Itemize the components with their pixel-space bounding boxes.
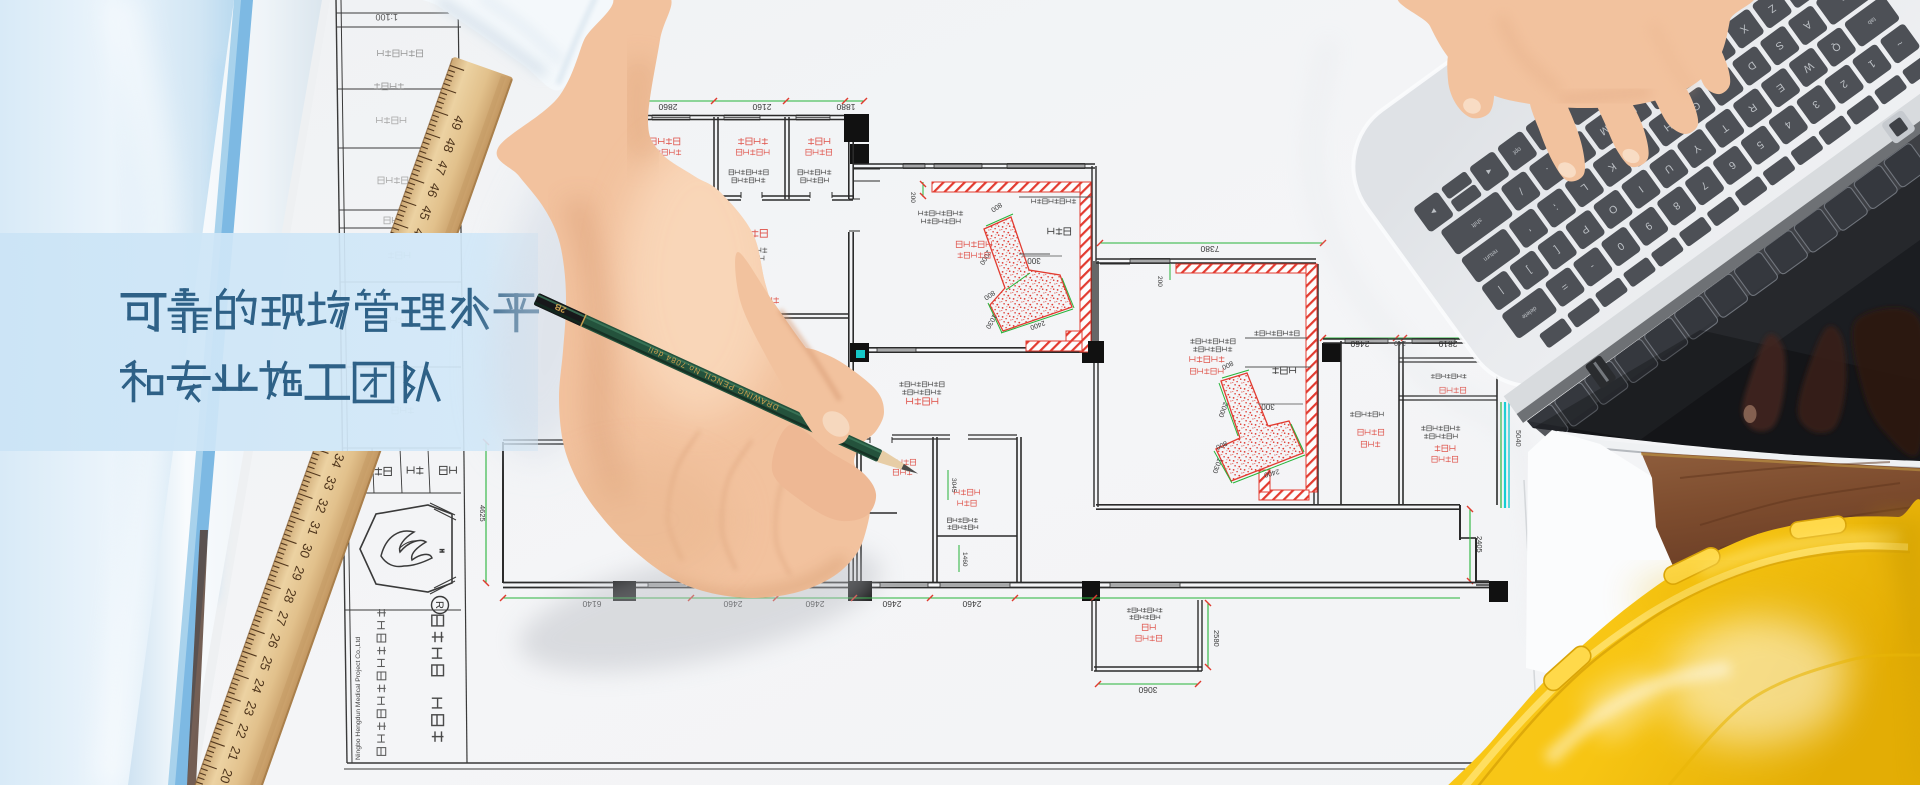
svg-text:1:100: 1:100 [375,12,398,22]
svg-text:200: 200 [1156,276,1163,287]
svg-text:2860: 2860 [658,102,677,112]
svg-text:3060: 3060 [1138,685,1157,695]
svg-text:2460: 2460 [962,599,981,609]
svg-text:4625: 4625 [478,505,487,522]
svg-text:1460: 1460 [961,552,968,567]
svg-text:2460: 2460 [882,599,901,609]
svg-text:7380: 7380 [1200,244,1219,254]
svg-text:H: H [438,549,444,554]
svg-text:1880: 1880 [836,102,855,112]
svg-text:2405: 2405 [1475,536,1484,553]
svg-text:2460: 2460 [1350,339,1369,349]
svg-text:300: 300 [1261,402,1275,411]
svg-text:2580: 2580 [1212,630,1221,647]
svg-text:R: R [433,601,445,609]
svg-text:3045: 3045 [950,478,957,493]
svg-text:2819: 2819 [1438,339,1457,349]
svg-text:300: 300 [1027,256,1041,265]
svg-text:2160: 2160 [752,102,771,112]
svg-text:Ningbo Hengdun Medical Project: Ningbo Hengdun Medical Project Co.,Ltd [355,637,362,760]
svg-text:200: 200 [909,192,916,203]
